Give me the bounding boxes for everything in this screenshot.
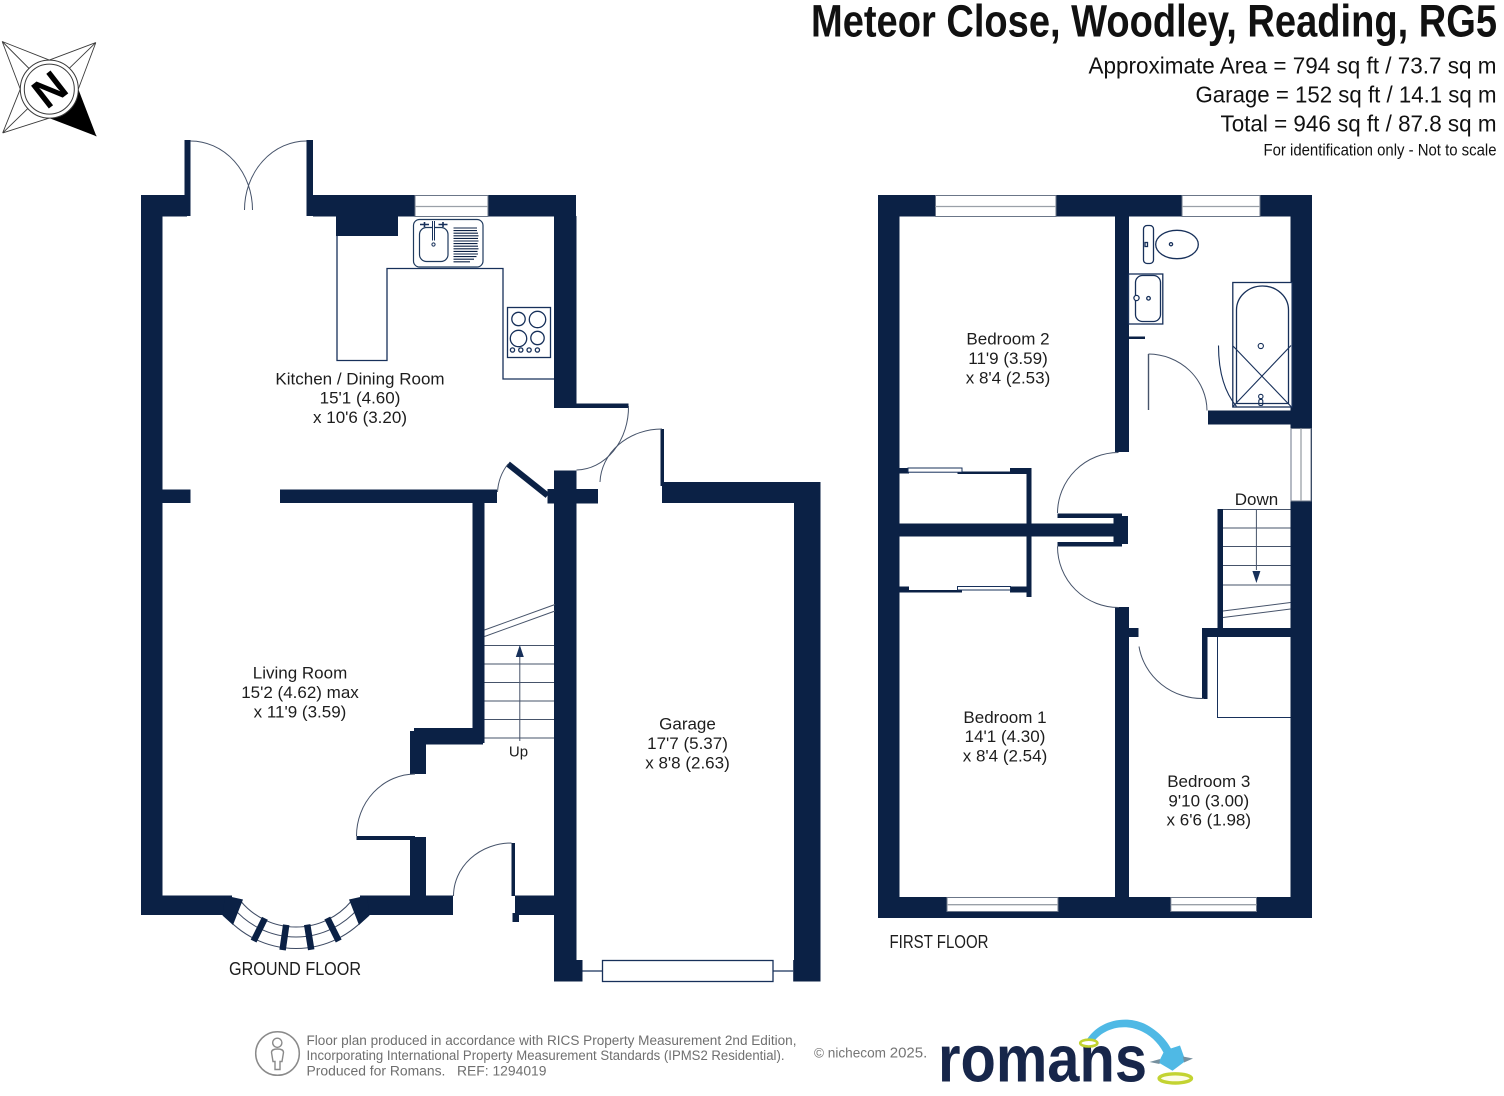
svg-text:9'10 (3.00): 9'10 (3.00): [1168, 792, 1249, 811]
svg-text:x 11'9 (3.59): x 11'9 (3.59): [254, 703, 347, 722]
svg-text:Down: Down: [1235, 490, 1278, 509]
svg-text:Garage: Garage: [659, 715, 716, 734]
svg-text:FIRST FLOOR: FIRST FLOOR: [890, 932, 989, 952]
svg-text:x 8'4 (2.54): x 8'4 (2.54): [963, 747, 1048, 766]
svg-text:x 8'4 (2.53): x 8'4 (2.53): [966, 369, 1051, 388]
svg-text:x 6'6 (1.98): x 6'6 (1.98): [1167, 811, 1252, 830]
svg-text:Garage = 152 sq ft / 14.1 sq m: Garage = 152 sq ft / 14.1 sq m: [1196, 82, 1497, 108]
svg-text:Bedroom 1: Bedroom 1: [963, 708, 1046, 727]
svg-text:Bedroom 2: Bedroom 2: [966, 330, 1049, 349]
svg-text:x 10'6 (3.20): x 10'6 (3.20): [313, 408, 407, 427]
svg-text:11'9 (3.59): 11'9 (3.59): [968, 349, 1047, 368]
svg-text:Incorporating International Pr: Incorporating International Property Mea…: [307, 1048, 785, 1063]
svg-text:15'2 (4.62) max: 15'2 (4.62) max: [241, 683, 359, 702]
svg-text:GROUND FLOOR: GROUND FLOOR: [229, 959, 361, 979]
svg-text:For identification only - Not: For identification only - Not to scale: [1264, 142, 1497, 160]
svg-text:17'7 (5.37): 17'7 (5.37): [647, 734, 728, 753]
svg-text:Up: Up: [509, 744, 528, 761]
svg-text:Bedroom 3: Bedroom 3: [1167, 772, 1250, 791]
svg-text:Total = 946 sq ft / 87.8 sq m: Total = 946 sq ft / 87.8 sq m: [1221, 111, 1497, 137]
svg-text:14'1 (4.30): 14'1 (4.30): [965, 727, 1046, 746]
svg-text:Floor plan produced in accorda: Floor plan produced in accordance with R…: [307, 1033, 797, 1048]
svg-text:romans: romans: [938, 1022, 1147, 1096]
svg-text:15'1 (4.60): 15'1 (4.60): [320, 389, 401, 408]
svg-text:Meteor Close, Woodley, Reading: Meteor Close, Woodley, Reading, RG5: [811, 0, 1497, 47]
svg-text:Kitchen / Dining Room: Kitchen / Dining Room: [275, 370, 444, 389]
svg-text:Approximate Area = 794 sq ft /: Approximate Area = 794 sq ft / 73.7 sq m: [1089, 53, 1497, 79]
svg-text:© nichecom 2025.: © nichecom 2025.: [814, 1045, 927, 1062]
svg-text:Produced for Romans. REF: 12: Produced for Romans. REF: 1294019: [307, 1064, 547, 1079]
svg-text:Living Room: Living Room: [253, 664, 348, 683]
svg-text:x 8'8 (2.63): x 8'8 (2.63): [645, 754, 730, 773]
